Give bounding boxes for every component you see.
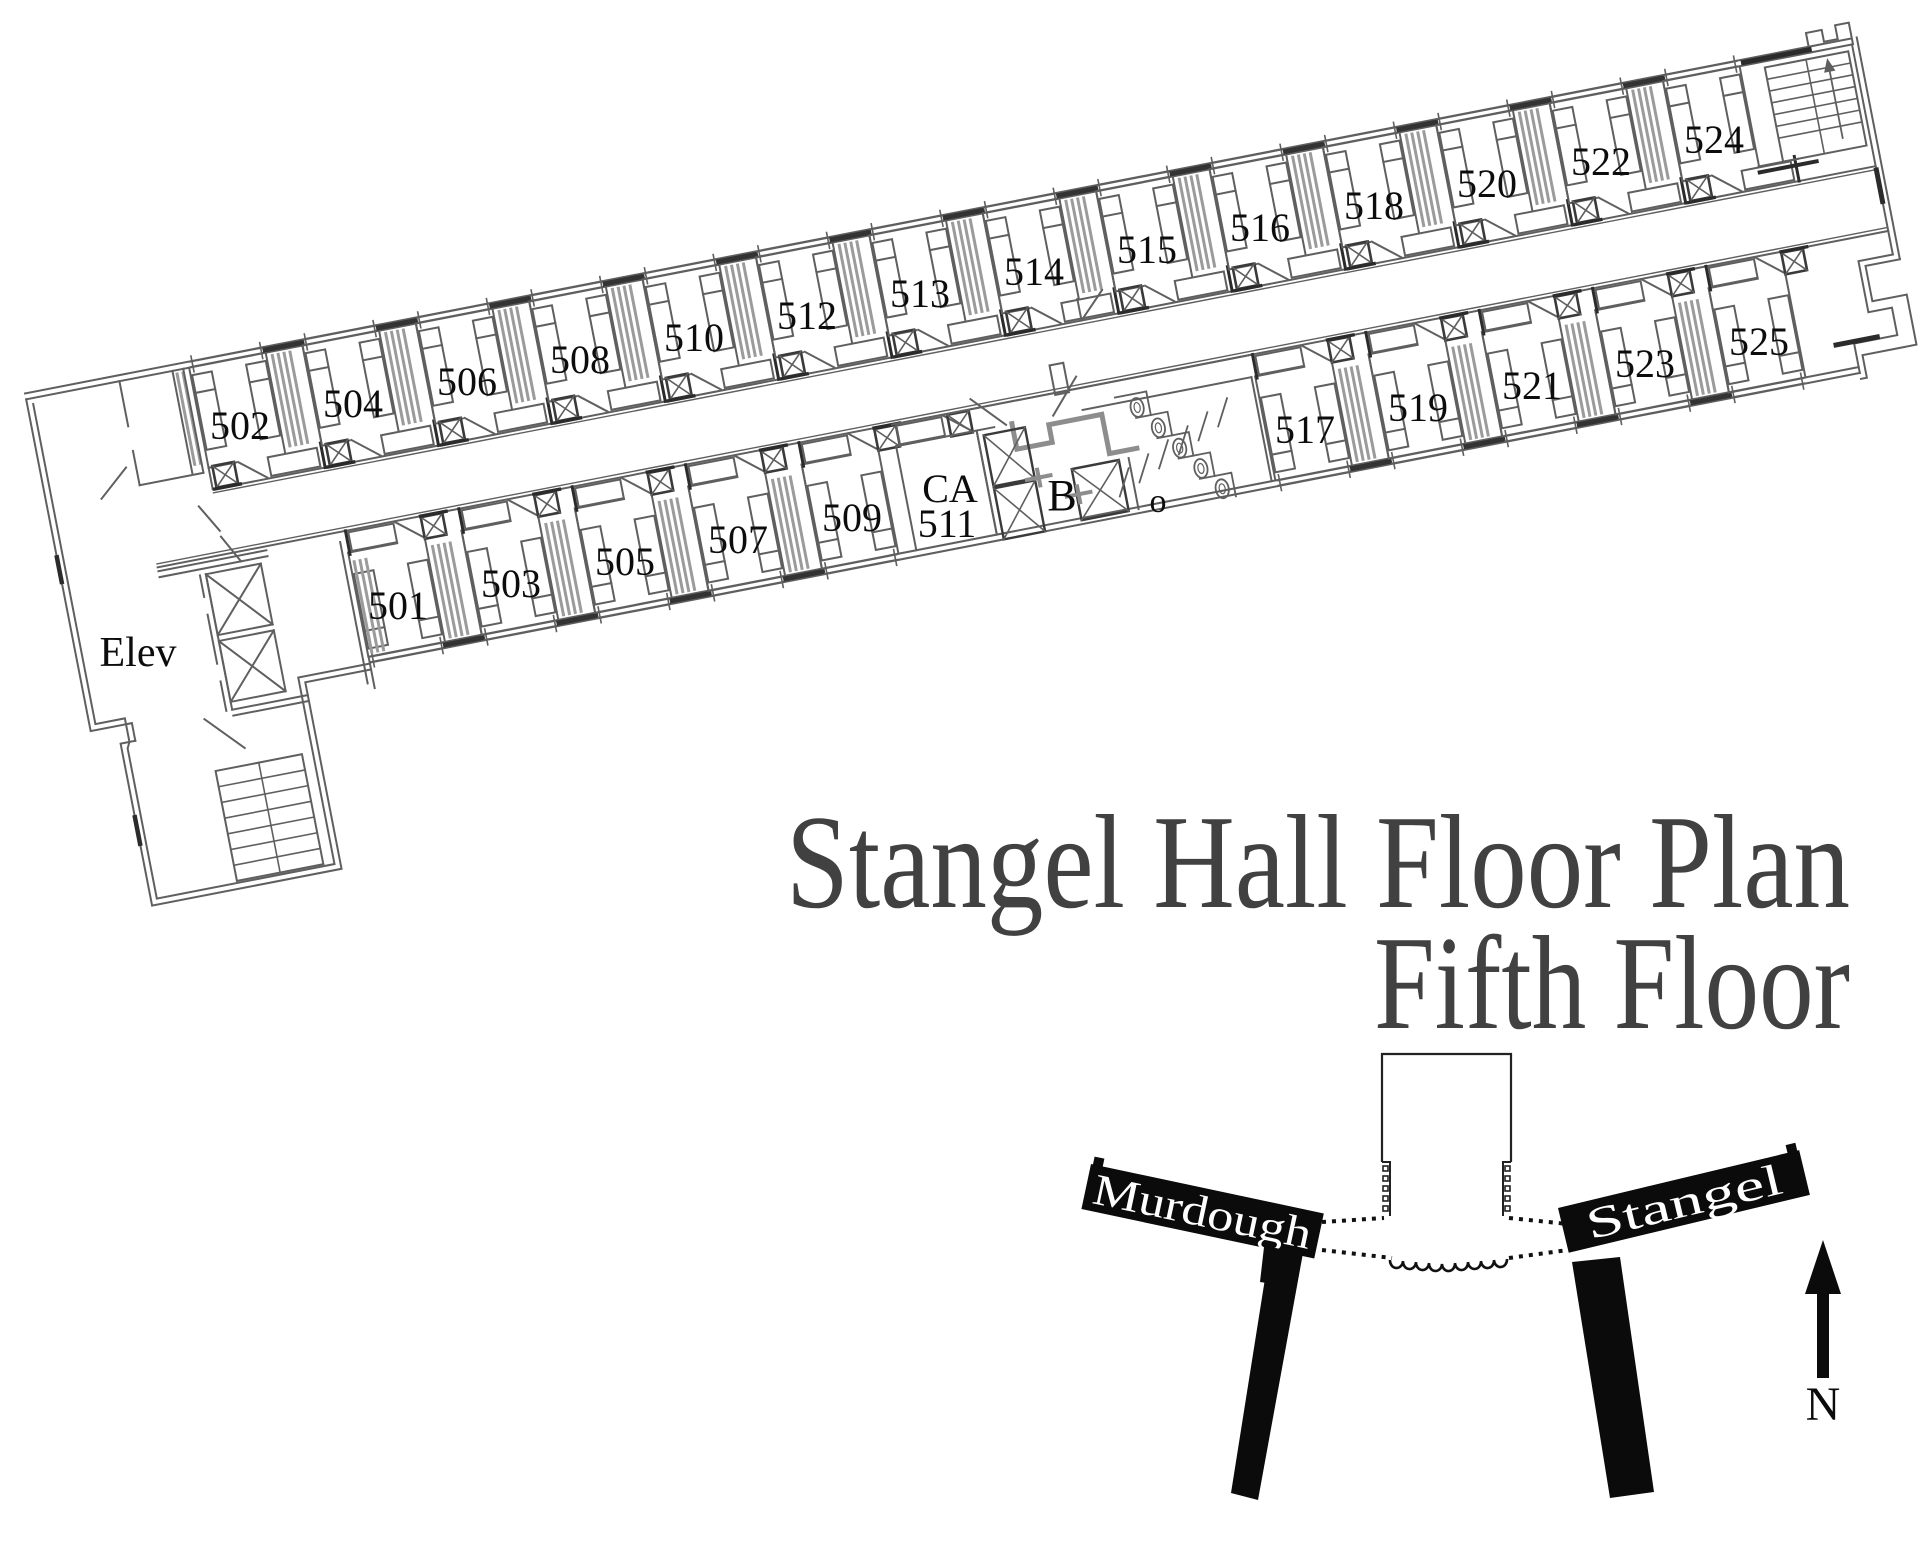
svg-text:514: 514 bbox=[1004, 249, 1064, 294]
svg-text:516: 516 bbox=[1230, 205, 1290, 250]
svg-text:508: 508 bbox=[550, 337, 610, 382]
svg-text:513: 513 bbox=[890, 271, 950, 316]
svg-text:N: N bbox=[1806, 1378, 1841, 1431]
svg-text:504: 504 bbox=[323, 381, 383, 426]
svg-text:503: 503 bbox=[481, 561, 541, 606]
svg-text:521: 521 bbox=[1502, 363, 1562, 408]
svg-text:518: 518 bbox=[1344, 183, 1404, 228]
svg-text:517: 517 bbox=[1275, 407, 1335, 452]
svg-text:511: 511 bbox=[918, 501, 977, 546]
svg-text:507: 507 bbox=[708, 517, 768, 562]
svg-text:Fifth Floor: Fifth Floor bbox=[1374, 909, 1850, 1057]
svg-text:520: 520 bbox=[1457, 161, 1517, 206]
svg-text:519: 519 bbox=[1388, 385, 1448, 430]
svg-text:515: 515 bbox=[1117, 227, 1177, 272]
svg-text:501: 501 bbox=[368, 583, 428, 628]
svg-text:506: 506 bbox=[437, 359, 497, 404]
svg-text:524: 524 bbox=[1684, 117, 1744, 162]
svg-text:509: 509 bbox=[822, 495, 882, 540]
svg-text:512: 512 bbox=[777, 293, 837, 338]
svg-text:523: 523 bbox=[1615, 341, 1675, 386]
svg-text:522: 522 bbox=[1571, 139, 1631, 184]
svg-text:505: 505 bbox=[595, 539, 655, 584]
svg-text:B: B bbox=[1047, 471, 1076, 520]
svg-text:525: 525 bbox=[1729, 319, 1789, 364]
svg-text:510: 510 bbox=[664, 315, 724, 360]
svg-text:502: 502 bbox=[210, 403, 270, 448]
svg-text:o: o bbox=[1150, 483, 1167, 520]
svg-text:Elev: Elev bbox=[100, 630, 177, 676]
